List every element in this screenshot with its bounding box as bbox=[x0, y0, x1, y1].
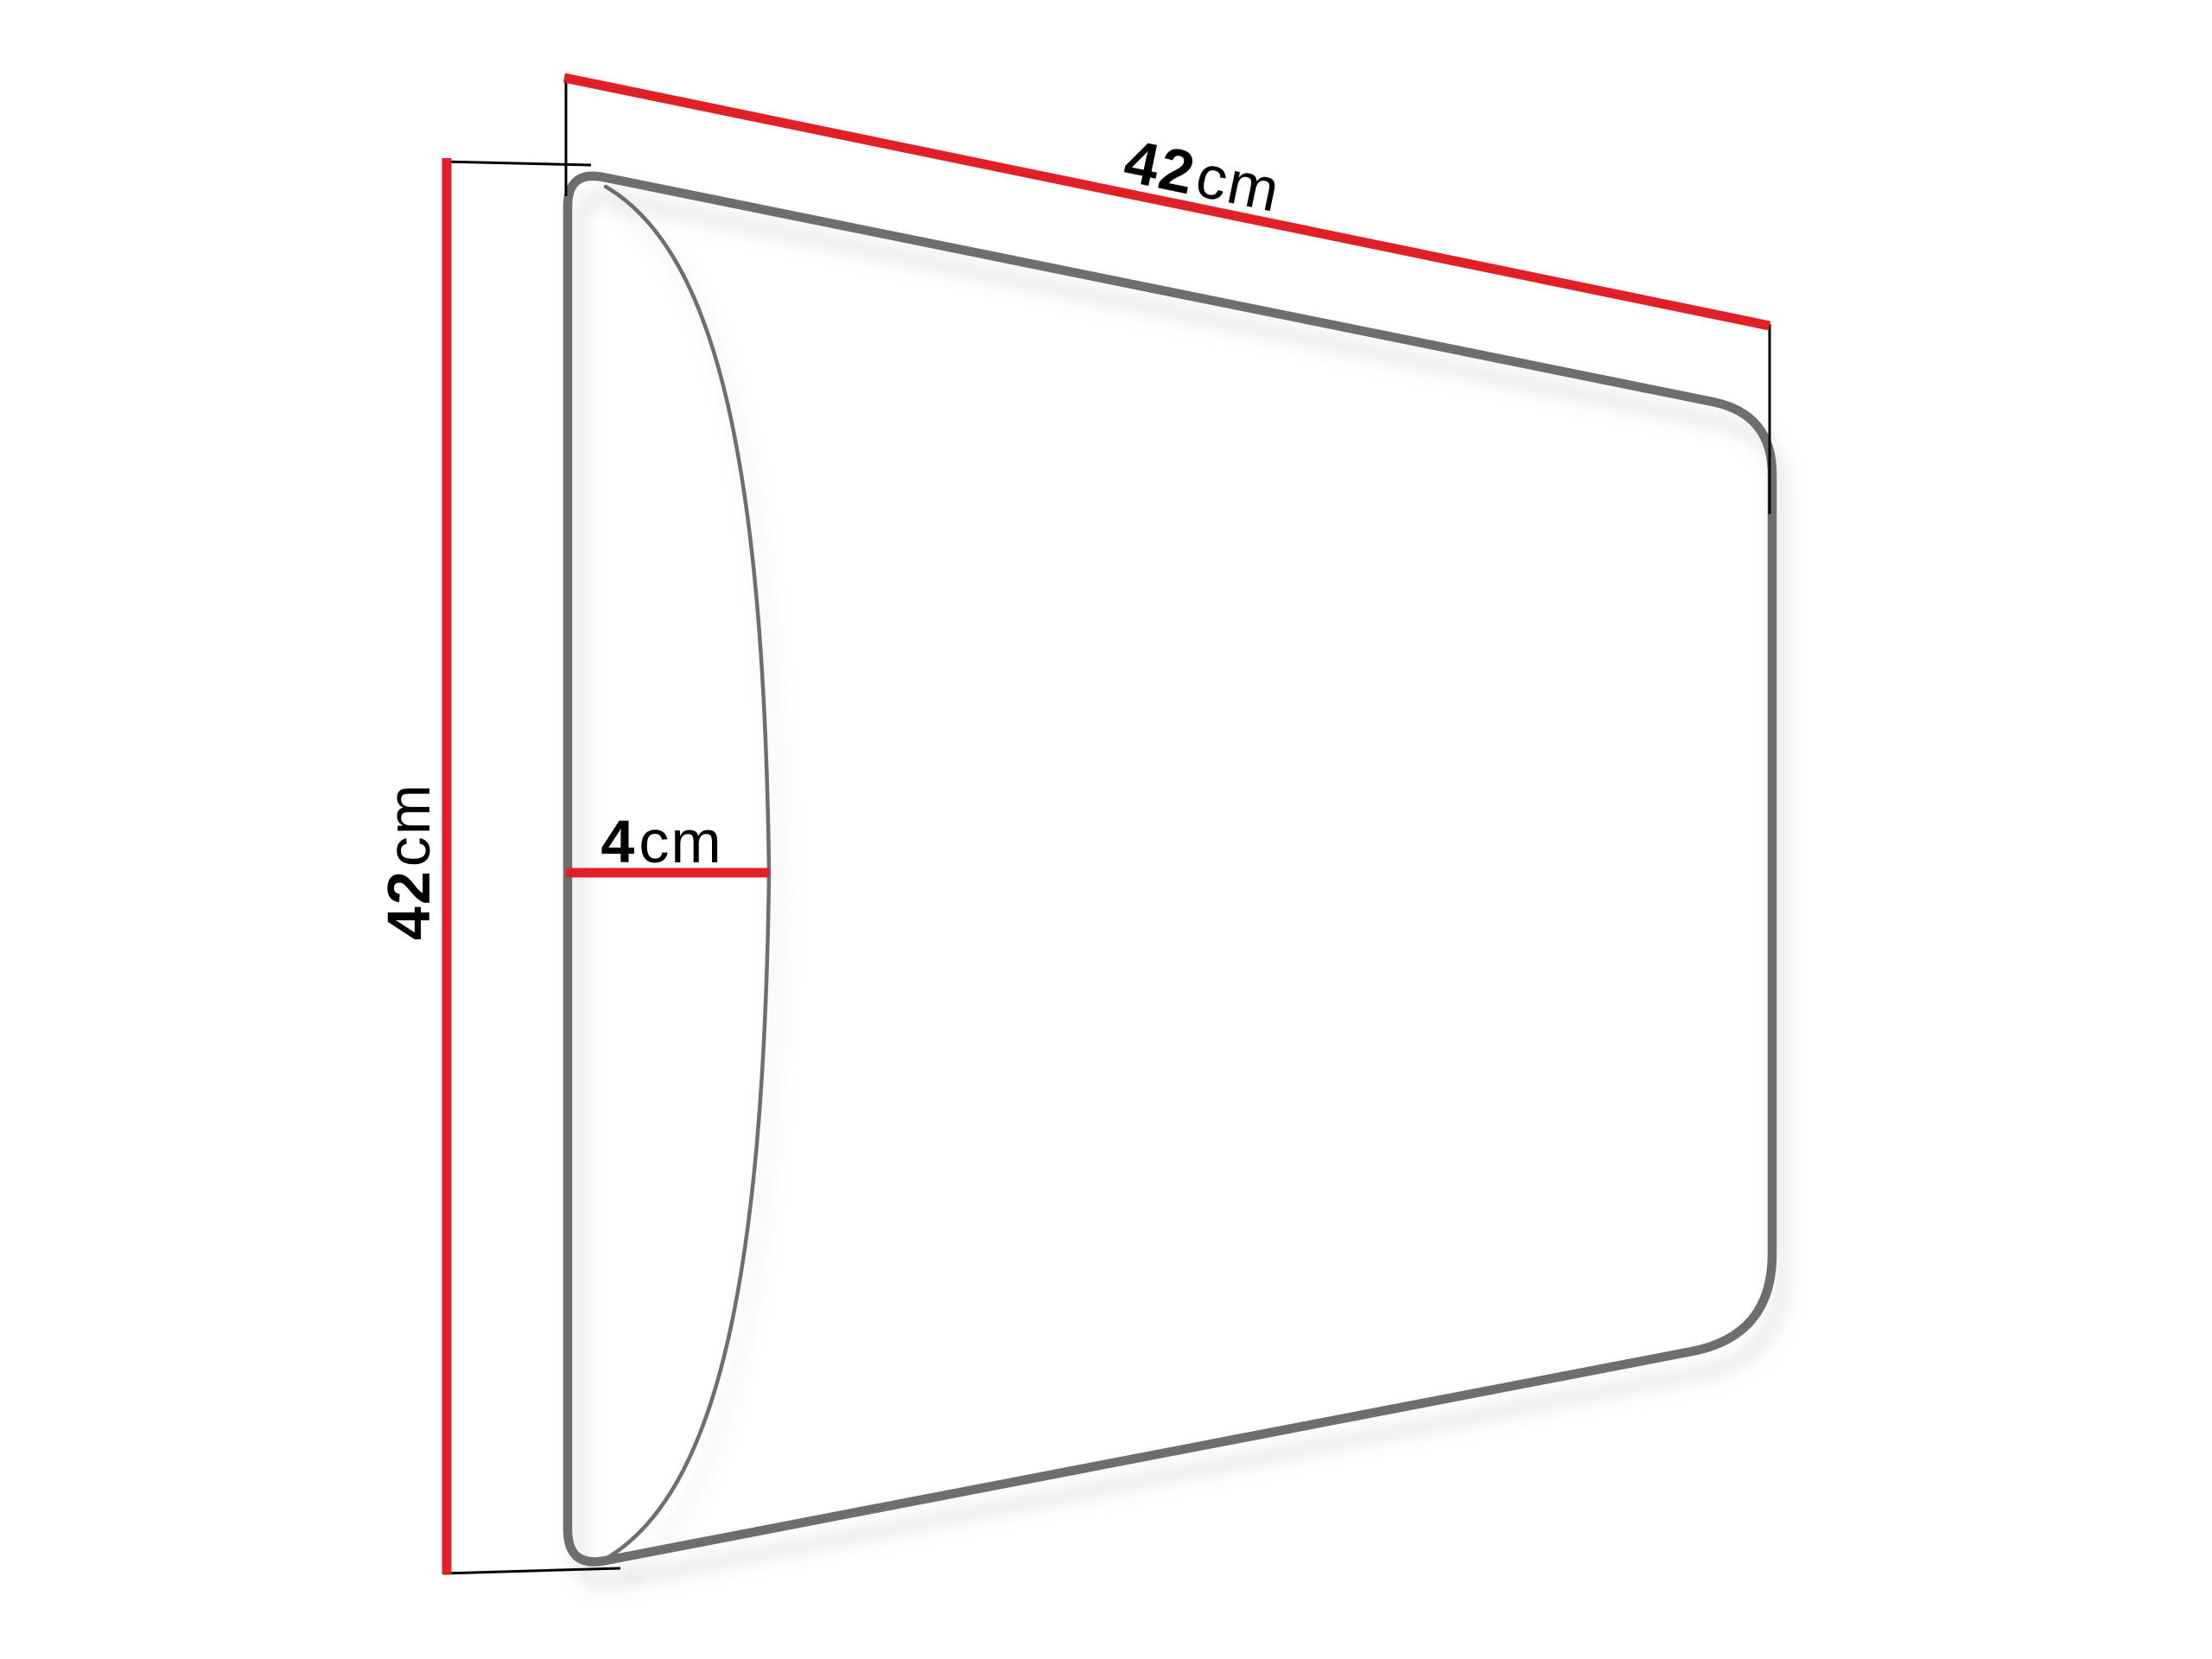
extension-line-top-left-horizontal bbox=[442, 162, 591, 165]
height-value: 42 bbox=[375, 869, 442, 940]
extension-line-bottom-left-horizontal bbox=[443, 1568, 620, 1573]
panel-dimension-diagram: 42cm 42cm 4cm bbox=[0, 0, 2212, 1659]
height-unit: cm bbox=[375, 783, 442, 867]
width-value: 42 bbox=[1119, 127, 1202, 207]
width-dimension-label: 42cm bbox=[1119, 127, 1287, 225]
depth-dimension-label: 4cm bbox=[601, 808, 722, 875]
height-dimension-label: 42cm bbox=[375, 783, 442, 940]
depth-unit: cm bbox=[639, 808, 722, 875]
depth-value: 4 bbox=[601, 808, 636, 875]
